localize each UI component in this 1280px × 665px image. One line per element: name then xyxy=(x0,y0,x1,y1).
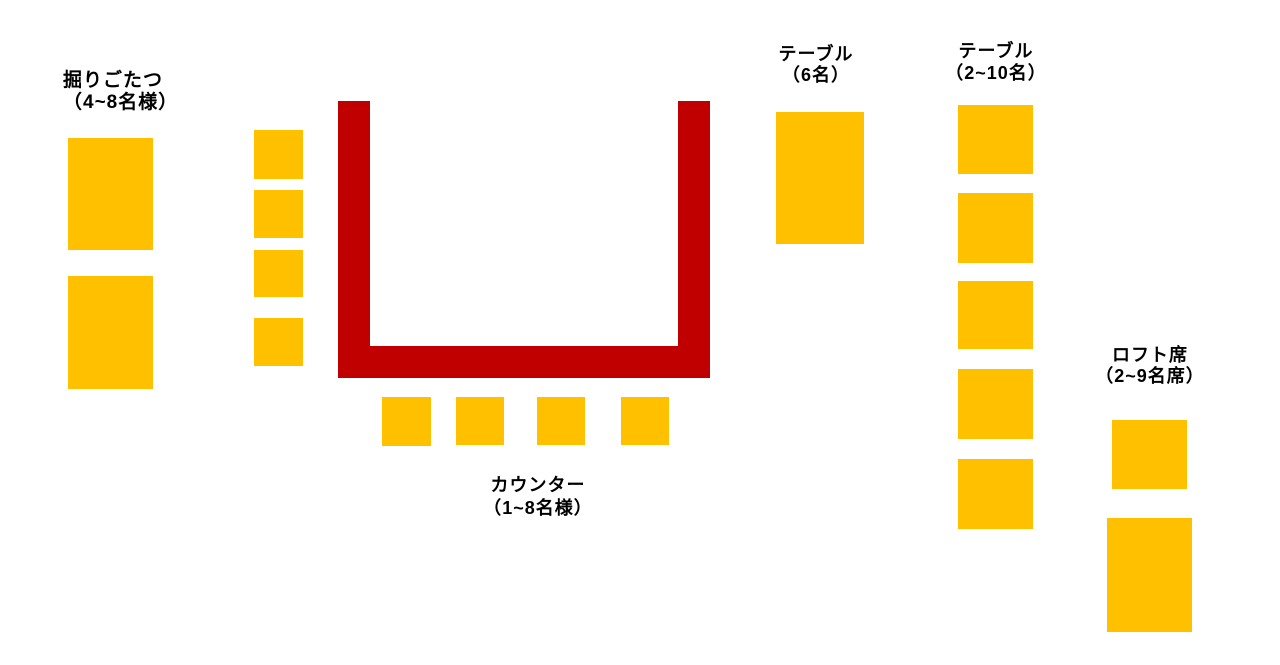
counter-u-shape-bar-2 xyxy=(678,101,710,378)
counter-seat-2 xyxy=(456,397,504,445)
table2-10-table-2 xyxy=(958,193,1033,263)
loft-label-capacity: （2~9名席） xyxy=(1090,366,1210,387)
counter-u-shape-bar-1 xyxy=(338,101,370,378)
horigotatsu-side-seat-3 xyxy=(254,250,303,297)
horigotatsu-side-seat-4 xyxy=(254,318,303,366)
counter-label: カウンター （1~8名様） xyxy=(458,474,618,520)
horigotatsu-side-seat-2 xyxy=(254,190,303,238)
counter-seat-4 xyxy=(621,397,669,445)
loft-table-2 xyxy=(1107,518,1192,632)
horigotatsu-label-capacity: （4~8名様） xyxy=(63,92,178,114)
horigotatsu-side-seat-1 xyxy=(254,130,303,179)
horigotatsu-label: 掘りごたつ （4~8名様） xyxy=(63,70,178,114)
counter-seat-3 xyxy=(537,397,585,445)
loft-label: ロフト席 （2~9名席） xyxy=(1090,345,1210,387)
counter-label-name: カウンター xyxy=(458,474,618,497)
table2-10-table-4 xyxy=(958,369,1033,439)
seating-shapes-layer xyxy=(0,0,1280,665)
table6-label: テーブル （6名） xyxy=(756,44,876,86)
table2-10-table-1 xyxy=(958,105,1033,174)
table6-label-capacity: （6名） xyxy=(756,65,876,86)
table2-10-label-name: テーブル xyxy=(934,40,1058,62)
table6-table-1 xyxy=(776,112,864,244)
counter-seat-1 xyxy=(382,397,431,446)
table2-10-table-5 xyxy=(958,459,1033,529)
table2-10-table-3 xyxy=(958,281,1033,349)
horigotatsu-label-name: 掘りごたつ xyxy=(63,70,178,92)
counter-label-capacity: （1~8名様） xyxy=(458,497,618,520)
horigotatsu-table-1 xyxy=(68,138,153,250)
counter-u-shape-bar-3 xyxy=(338,346,710,378)
horigotatsu-table-2 xyxy=(68,276,153,389)
table2-10-label: テーブル （2~10名） xyxy=(934,40,1058,84)
table2-10-label-capacity: （2~10名） xyxy=(934,62,1058,84)
restaurant-seating-chart: 掘りごたつ （4~8名様） カウンター （1~8名様） テーブル （6名） テー… xyxy=(0,0,1280,665)
loft-label-name: ロフト席 xyxy=(1090,345,1210,366)
loft-table-1 xyxy=(1112,420,1187,489)
table6-label-name: テーブル xyxy=(756,44,876,65)
